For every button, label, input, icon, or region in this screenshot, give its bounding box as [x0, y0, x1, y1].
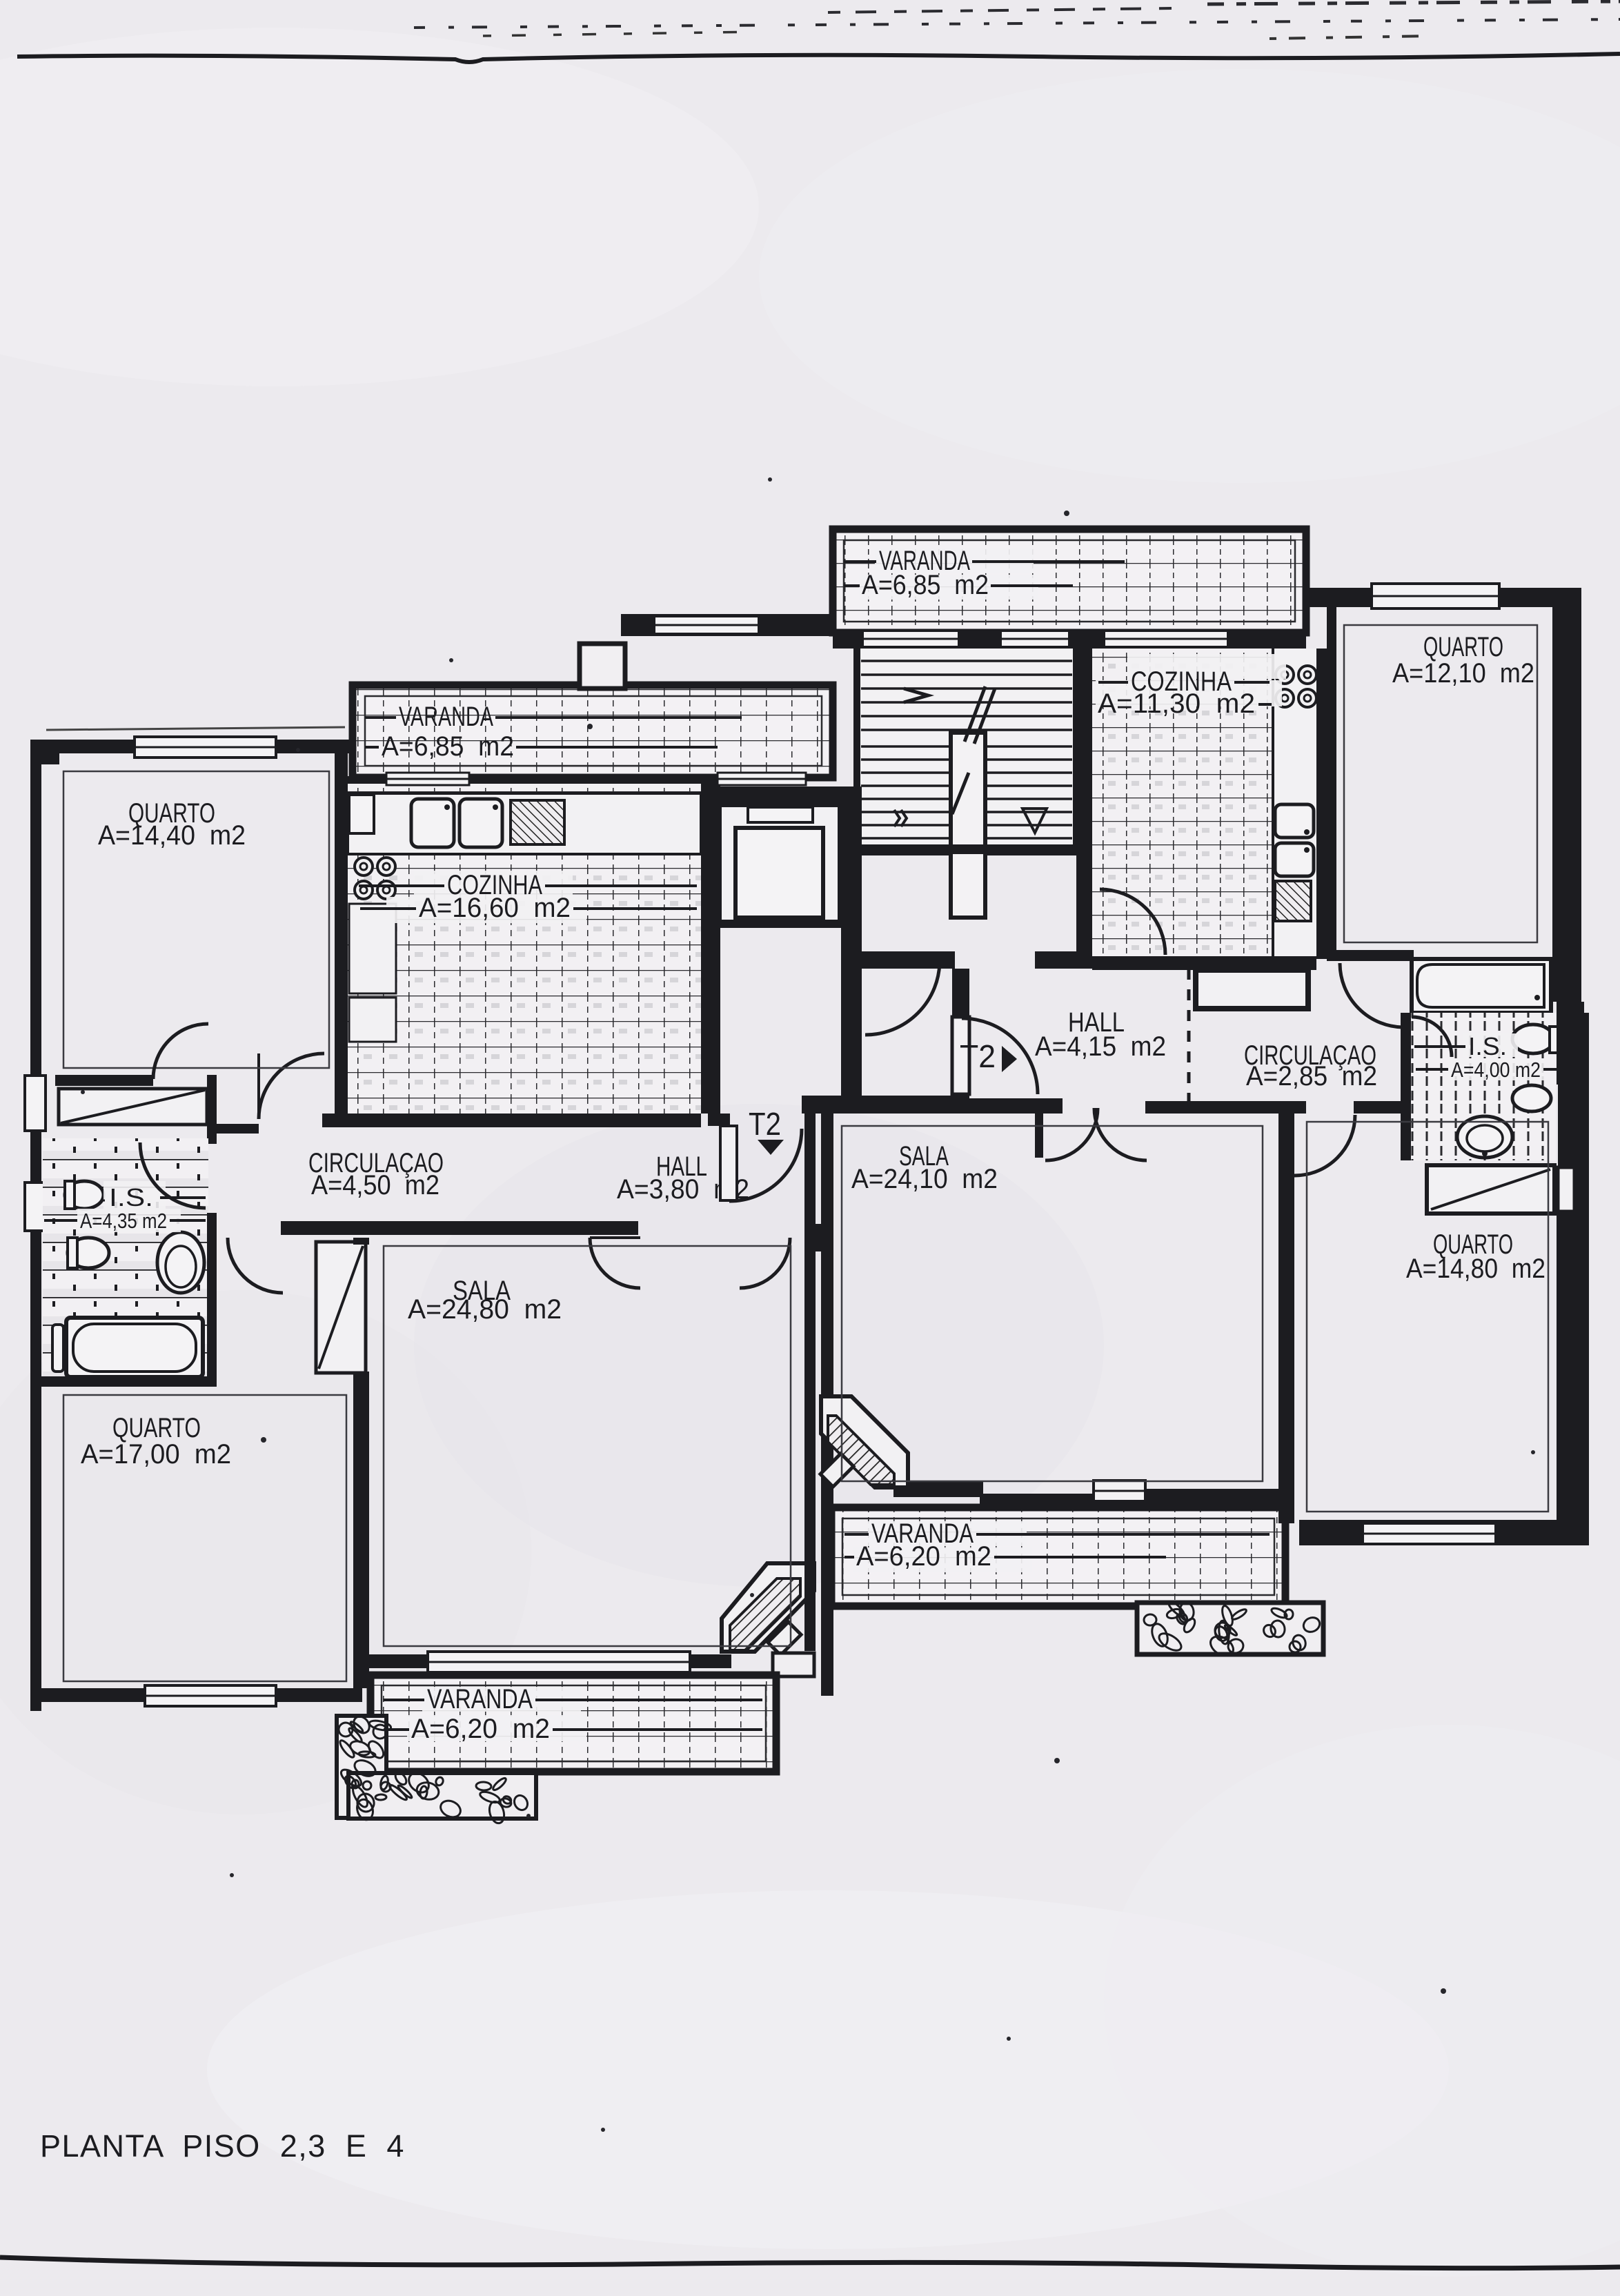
- svg-text:A=11,30 m2: A=11,30 m2: [1098, 689, 1255, 719]
- svg-text:VARANDA: VARANDA: [427, 1684, 533, 1714]
- svg-text:A=4,50 m2: A=4,50 m2: [311, 1170, 439, 1200]
- svg-text:I.S.: I.S.: [1468, 1032, 1507, 1060]
- svg-text:T2: T2: [960, 1038, 996, 1074]
- svg-text:VARANDA: VARANDA: [399, 702, 493, 732]
- svg-text:A=4,35 m2: A=4,35 m2: [80, 1209, 167, 1233]
- svg-text:A=4,00 m2: A=4,00 m2: [1451, 1058, 1541, 1082]
- svg-text:PLANTA PISO 2,3 E 4: PLANTA PISO 2,3 E 4: [40, 2128, 405, 2164]
- svg-text:A=6,85 m2: A=6,85 m2: [862, 570, 989, 600]
- svg-text:A=17,00 m2: A=17,00 m2: [81, 1439, 231, 1469]
- svg-text:A=4,15 m2: A=4,15 m2: [1035, 1031, 1166, 1062]
- svg-text:A=14,80 m2: A=14,80 m2: [1406, 1254, 1545, 1284]
- svg-text:A=12,10 m2: A=12,10 m2: [1392, 658, 1534, 689]
- svg-text:A=14,40 m2: A=14,40 m2: [98, 820, 246, 851]
- svg-text:T2: T2: [749, 1106, 781, 1142]
- svg-text:A=2,85 m2: A=2,85 m2: [1246, 1061, 1377, 1091]
- svg-text:A=24,10 m2: A=24,10 m2: [851, 1164, 998, 1194]
- svg-text:A=16,60 m2: A=16,60 m2: [419, 893, 571, 923]
- svg-text:A=6,85 m2: A=6,85 m2: [382, 731, 514, 762]
- svg-text:A=24,80 m2: A=24,80 m2: [408, 1294, 562, 1325]
- svg-text:A=6,20 m2: A=6,20 m2: [856, 1541, 991, 1572]
- svg-text:A=6,20 m2: A=6,20 m2: [411, 1714, 550, 1744]
- svg-text:I.S.: I.S.: [109, 1183, 153, 1211]
